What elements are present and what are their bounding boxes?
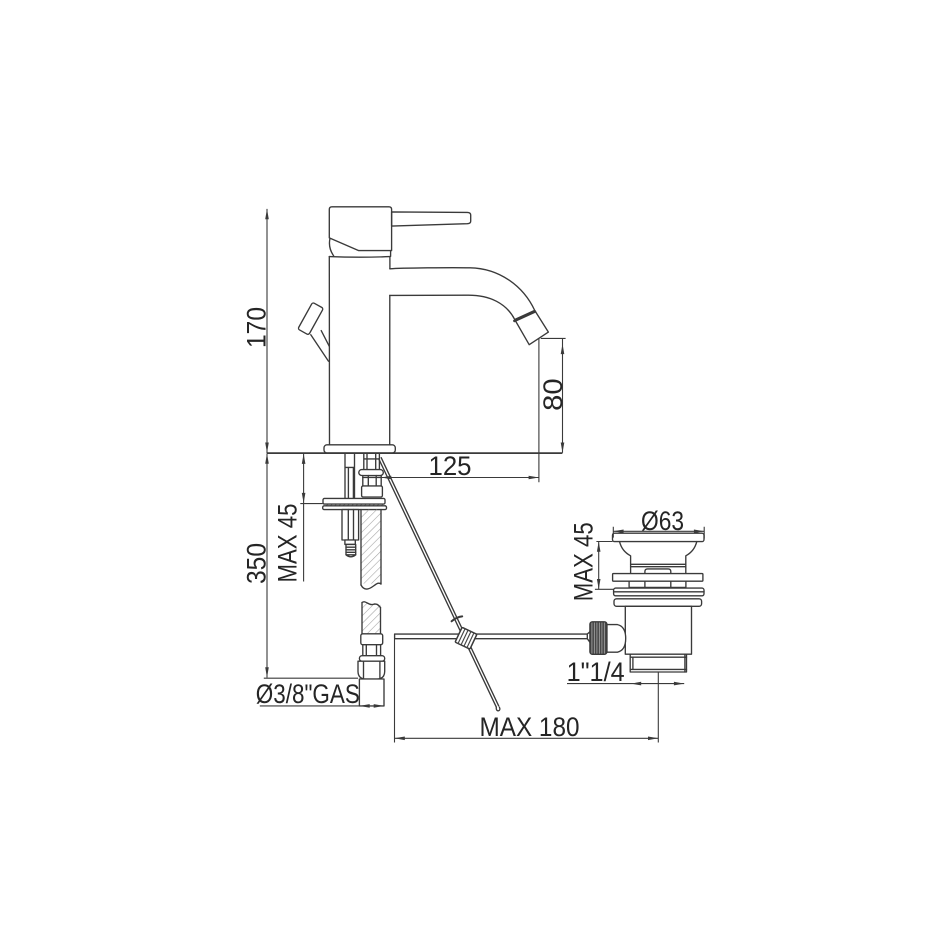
svg-text:MAX 45: MAX 45 [272,504,303,583]
svg-text:MAX 180: MAX 180 [480,711,580,742]
svg-text:Ø3/8"GAS: Ø3/8"GAS [256,678,360,709]
svg-text:350: 350 [240,543,271,584]
svg-text:Ø63: Ø63 [641,505,684,536]
svg-text:125: 125 [429,450,472,481]
svg-text:170: 170 [240,307,271,348]
svg-text:80: 80 [537,378,568,411]
svg-text:1"1/4: 1"1/4 [567,656,625,687]
svg-text:MAX 45: MAX 45 [567,522,598,601]
